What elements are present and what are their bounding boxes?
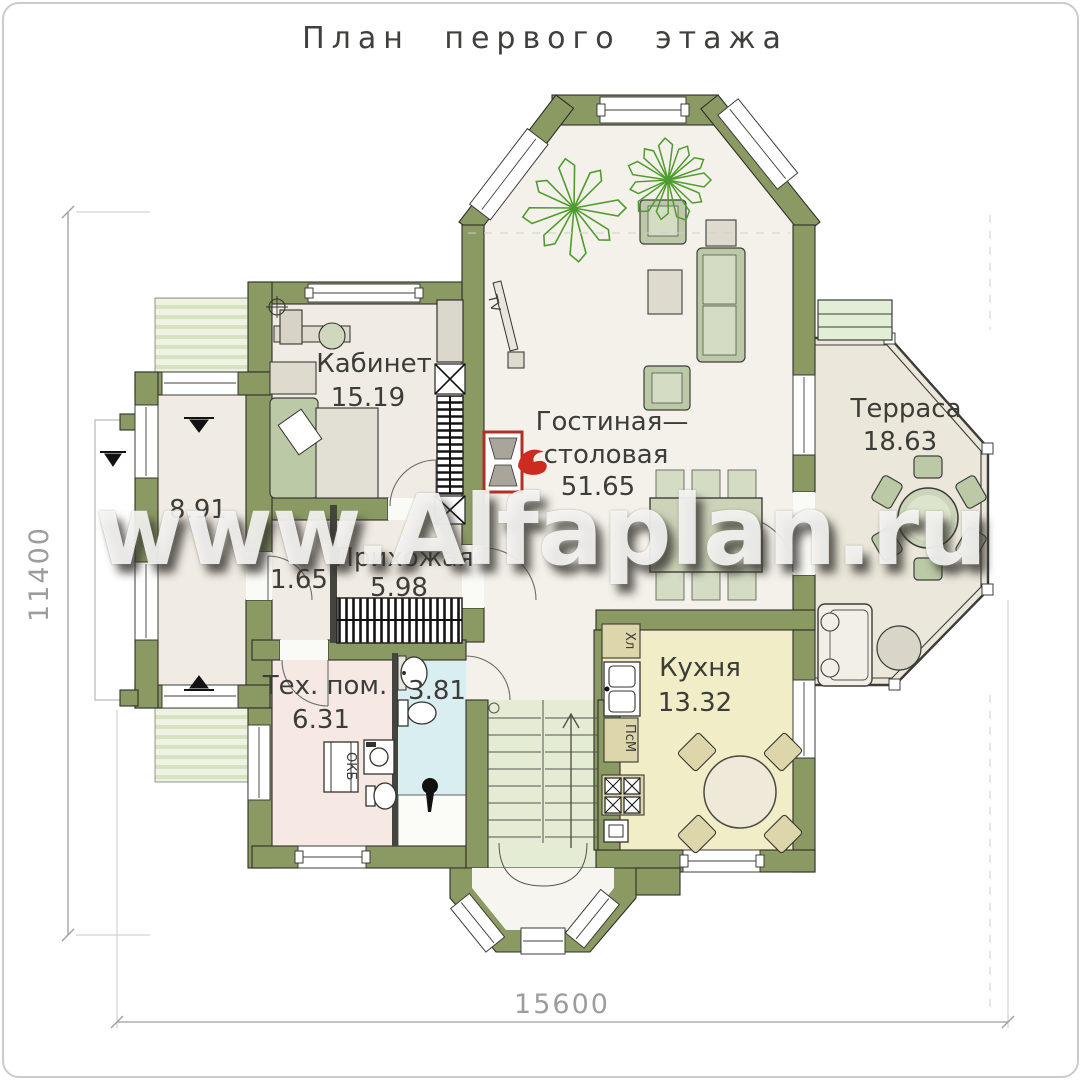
washing-machine xyxy=(364,740,394,774)
office-window xyxy=(305,284,423,302)
kitchen-sink xyxy=(604,662,640,716)
living-right-window xyxy=(793,375,815,455)
lower-porch-deck xyxy=(155,708,248,782)
office-shelf xyxy=(270,362,316,394)
floor-plan-drawing: План первого этажа xyxy=(0,0,1081,1080)
corridor-area: 1.65 xyxy=(270,565,328,595)
terrace-side-table xyxy=(877,626,921,670)
bed xyxy=(270,398,378,498)
living-area: 51.65 xyxy=(561,472,635,502)
dining-table xyxy=(650,498,762,572)
boiler-label: ОКБ xyxy=(343,752,358,780)
tech-bottom-window xyxy=(295,846,370,868)
side-room-area: 8.91 xyxy=(169,495,227,525)
desk-chair xyxy=(319,323,345,349)
kitchen-table xyxy=(704,756,776,828)
tech-door-opening xyxy=(280,640,328,660)
dimension-vertical: 11400 xyxy=(24,526,55,622)
terrace-door-opening xyxy=(793,492,815,575)
kitchen-appliances: Хл ПсМ xyxy=(602,624,644,842)
office-door-opening xyxy=(388,498,436,520)
kitchen-name: Кухня xyxy=(659,653,741,683)
stove xyxy=(602,775,644,815)
terrace-sofa xyxy=(818,604,872,686)
office-name: Кабинет xyxy=(316,349,431,379)
bay-top-window xyxy=(597,97,689,123)
tech-left-window xyxy=(248,725,270,800)
tech-room-area: 6.31 xyxy=(292,705,350,735)
dining-set xyxy=(650,470,762,600)
terrace-name: Терраса xyxy=(849,394,961,424)
terrace-area: 18.63 xyxy=(863,427,937,457)
living-name-2: столовая xyxy=(544,440,669,470)
bathroom-area: 3.81 xyxy=(408,676,466,706)
kitchen-bottom-window xyxy=(680,850,764,872)
speaker xyxy=(508,352,524,368)
kitchen-area: 13.32 xyxy=(658,688,732,718)
hall-wardrobe xyxy=(337,598,462,643)
hallway-area: 5.98 xyxy=(370,573,428,603)
office-wardrobe xyxy=(435,300,465,524)
page-title: План первого этажа xyxy=(302,21,788,56)
fridge-label: Хл xyxy=(622,632,637,649)
planter-box xyxy=(818,300,892,340)
upper-porch-deck xyxy=(155,298,248,372)
living-name-1: Гостиная— xyxy=(536,407,689,437)
tech-room-name: Тех. пом. xyxy=(262,671,388,701)
side-room-floor xyxy=(158,395,246,685)
tech-toilet xyxy=(366,783,396,809)
hallway-name: Прихожая xyxy=(334,543,473,573)
dishwasher-label: ПсМ xyxy=(622,724,637,752)
kitchen-cabinet xyxy=(604,820,628,842)
computer xyxy=(280,310,302,344)
floor-plan-page: План первого этажа xyxy=(0,0,1081,1080)
office-area: 15.19 xyxy=(331,383,405,413)
coffee-table xyxy=(648,270,682,314)
floor-drain xyxy=(422,778,438,794)
dimension-horizontal: 15600 xyxy=(514,989,610,1020)
